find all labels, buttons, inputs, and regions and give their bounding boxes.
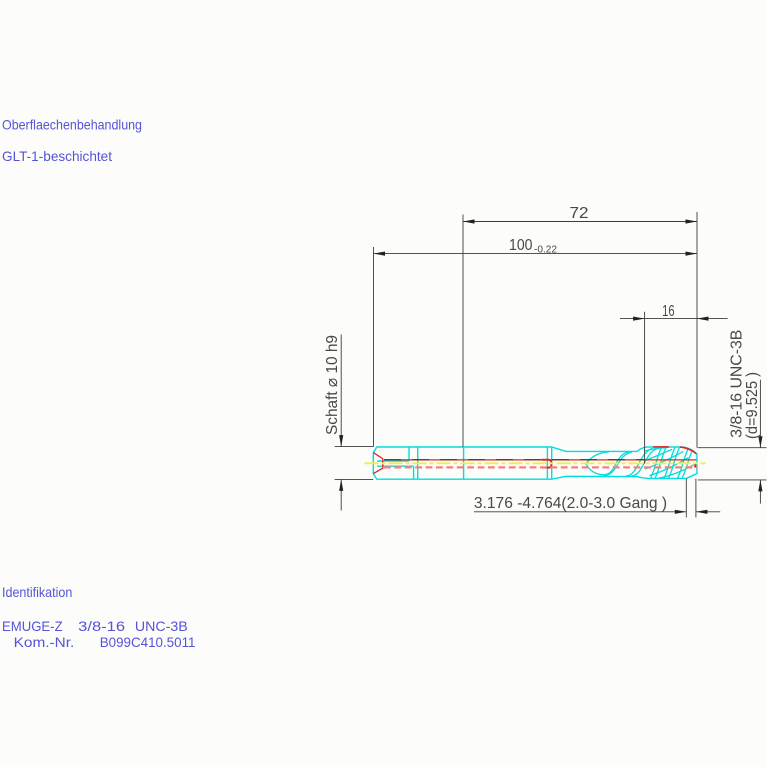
svg-text:Kom.-Nr.: Kom.-Nr. <box>14 634 75 650</box>
svg-text:3.176 -4.764(2.0-3.0 Gang ): 3.176 -4.764(2.0-3.0 Gang ) <box>474 495 667 512</box>
svg-text:EMUGE-Z: EMUGE-Z <box>2 618 63 634</box>
svg-text:GLT-1-beschichtet: GLT-1-beschichtet <box>2 148 112 164</box>
svg-text:UNC-3B: UNC-3B <box>135 618 188 634</box>
svg-text:Identifikation: Identifikation <box>2 584 72 600</box>
svg-text:3/8-16 UNC-3B: 3/8-16 UNC-3B <box>729 330 746 438</box>
svg-text:100: 100 <box>509 237 533 254</box>
svg-text:Schaft ⌀ 10 h9: Schaft ⌀ 10 h9 <box>324 335 341 435</box>
svg-text:-0.22: -0.22 <box>534 244 557 256</box>
svg-text:(d=9.525 ): (d=9.525 ) <box>744 372 761 439</box>
svg-text:B099C410.5011: B099C410.5011 <box>100 634 196 650</box>
svg-text:16: 16 <box>662 303 675 320</box>
svg-text:Oberflaechenbehandlung: Oberflaechenbehandlung <box>2 117 142 133</box>
svg-text:3/8-16: 3/8-16 <box>78 618 125 634</box>
svg-text:72: 72 <box>570 205 589 222</box>
